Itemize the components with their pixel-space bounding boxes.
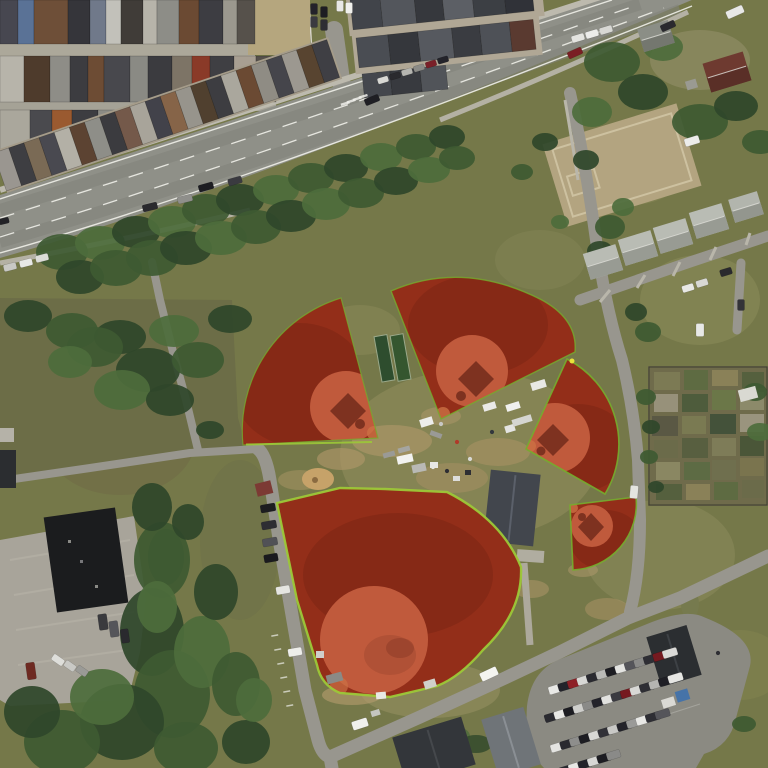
rowhouse-roof	[441, 0, 474, 20]
rowhouse-roof	[24, 56, 50, 102]
car	[337, 1, 344, 12]
tree-canopy	[4, 686, 60, 738]
tree-canopy	[146, 384, 194, 416]
rowhouse-roof	[350, 0, 383, 30]
garden-plot	[712, 438, 736, 456]
tree-canopy	[612, 198, 634, 216]
tree-canopy	[532, 133, 558, 151]
tree-canopy	[172, 342, 224, 378]
trailer-structure	[80, 560, 83, 563]
foul-pole-marker	[570, 359, 575, 364]
grass-patch	[466, 438, 530, 466]
garden-plot	[684, 462, 710, 480]
trailer-structure	[465, 470, 471, 475]
car	[97, 613, 108, 630]
tree-canopy	[635, 322, 661, 342]
car	[321, 20, 328, 31]
person-dot	[455, 440, 459, 444]
garden-plot	[710, 414, 736, 434]
rowhouse-roof	[362, 71, 392, 98]
tree-canopy	[149, 315, 199, 347]
aerial-photo	[0, 0, 768, 768]
tree-canopy	[194, 564, 238, 620]
rowhouse-roof	[88, 56, 104, 102]
central-pad	[517, 549, 545, 563]
rowhouse-roof	[388, 32, 421, 65]
tree-canopy	[732, 716, 756, 732]
garden-plot	[684, 370, 708, 390]
garden-plot	[742, 480, 764, 498]
tree-canopy	[236, 678, 272, 722]
tree-canopy	[572, 97, 612, 127]
garden-plot	[712, 370, 738, 386]
tree-canopy	[208, 305, 252, 333]
garden-plot	[712, 390, 736, 410]
tree-canopy	[595, 215, 625, 239]
tree-canopy	[648, 481, 664, 493]
grass-patch	[495, 230, 585, 290]
rowhouse-roof	[70, 56, 88, 102]
rowhouse-roof	[121, 0, 143, 44]
rowhouse-roof	[179, 0, 199, 44]
warehouse-roof	[44, 507, 129, 612]
person-dot	[439, 422, 443, 426]
rowhouse-row-1	[0, 0, 255, 44]
person-dot	[468, 457, 472, 461]
tree-canopy	[625, 303, 647, 321]
rowhouse-roof	[106, 0, 121, 44]
tree-canopy	[137, 581, 177, 633]
rowhouse-roof	[471, 0, 506, 17]
trailer-structure	[453, 476, 460, 481]
garden-plot	[740, 458, 764, 476]
tree-canopy	[132, 483, 172, 531]
tree-canopy	[4, 300, 52, 332]
tree-canopy	[551, 215, 569, 229]
car	[321, 7, 328, 18]
rowhouse-roof	[509, 19, 536, 51]
person-dot	[431, 465, 435, 469]
person-dot	[490, 430, 494, 434]
rowhouse-roof	[199, 0, 223, 44]
car	[108, 620, 119, 637]
left-edge-building	[0, 450, 16, 488]
tree-canopy	[636, 389, 656, 405]
car	[311, 17, 318, 28]
person-dot	[445, 469, 449, 473]
tree-canopy	[360, 143, 402, 171]
person-dot	[716, 651, 720, 655]
rowhouse-roof	[380, 0, 417, 27]
tree-canopy	[439, 146, 475, 170]
rowhouse-roof	[50, 56, 70, 102]
rowhouse-roof	[143, 0, 157, 44]
rowhouse-roof	[237, 0, 255, 44]
garden-plot	[656, 462, 680, 480]
grass-patch	[317, 448, 365, 470]
left-edge-building	[0, 450, 16, 488]
garden-plot	[686, 484, 710, 500]
rowhouse-roof	[18, 0, 34, 44]
car	[346, 3, 353, 14]
tree-canopy	[714, 91, 758, 121]
trailer-structure	[68, 540, 71, 543]
garden-plot	[654, 394, 678, 412]
ground-flat	[0, 44, 255, 56]
garden-plot	[714, 482, 738, 500]
tree-canopy	[70, 669, 134, 725]
car	[738, 300, 745, 311]
trailer-structure	[95, 585, 98, 588]
left-edge-building-2	[0, 428, 14, 442]
garden-plot	[654, 372, 680, 390]
tree-canopy	[172, 504, 204, 540]
tree-canopy	[94, 370, 150, 410]
garden-plot	[712, 460, 736, 480]
tree-canopy	[642, 420, 660, 434]
tree-canopy	[618, 74, 668, 110]
tree-canopy	[148, 529, 184, 585]
tree-canopy	[48, 346, 92, 378]
rowhouse-roof	[223, 0, 237, 44]
tree-canopy	[511, 164, 533, 180]
rowhouse-roof	[104, 56, 130, 102]
trailer-structure	[316, 651, 324, 658]
car	[120, 629, 130, 644]
practice-mound	[302, 468, 334, 490]
rowhouse-roof	[68, 0, 90, 44]
left-edge-building-2	[0, 428, 14, 442]
tree-canopy	[573, 150, 599, 170]
rowhouse-roof	[0, 56, 24, 102]
grass-patch	[416, 463, 488, 493]
rowhouse-roof	[356, 35, 391, 68]
rowhouse-roof	[451, 25, 482, 58]
rowhouse-roof	[418, 28, 455, 61]
garden-plot	[682, 438, 708, 458]
rowhouse-roof	[414, 0, 445, 23]
garden-plot	[682, 394, 708, 412]
rowhouse-roof	[130, 56, 148, 102]
car	[629, 485, 638, 499]
rowhouse-roof	[34, 0, 68, 44]
car	[311, 4, 318, 15]
garden-plot	[682, 416, 706, 434]
rowhouse-roof	[90, 0, 106, 44]
rowhouse-roof	[0, 0, 18, 44]
car	[696, 324, 704, 337]
rowhouse-roof	[157, 0, 179, 44]
dead-end-street	[737, 263, 741, 330]
satellite-image	[0, 0, 768, 768]
warehouse-roof	[44, 507, 129, 612]
tree-canopy	[429, 125, 465, 149]
rowhouse-roof	[479, 22, 512, 55]
practice-mound-center	[312, 477, 318, 483]
tree-canopy	[196, 421, 224, 439]
trailer-structure	[376, 692, 387, 700]
tree-canopy	[640, 450, 658, 464]
tree-canopy	[222, 720, 270, 764]
